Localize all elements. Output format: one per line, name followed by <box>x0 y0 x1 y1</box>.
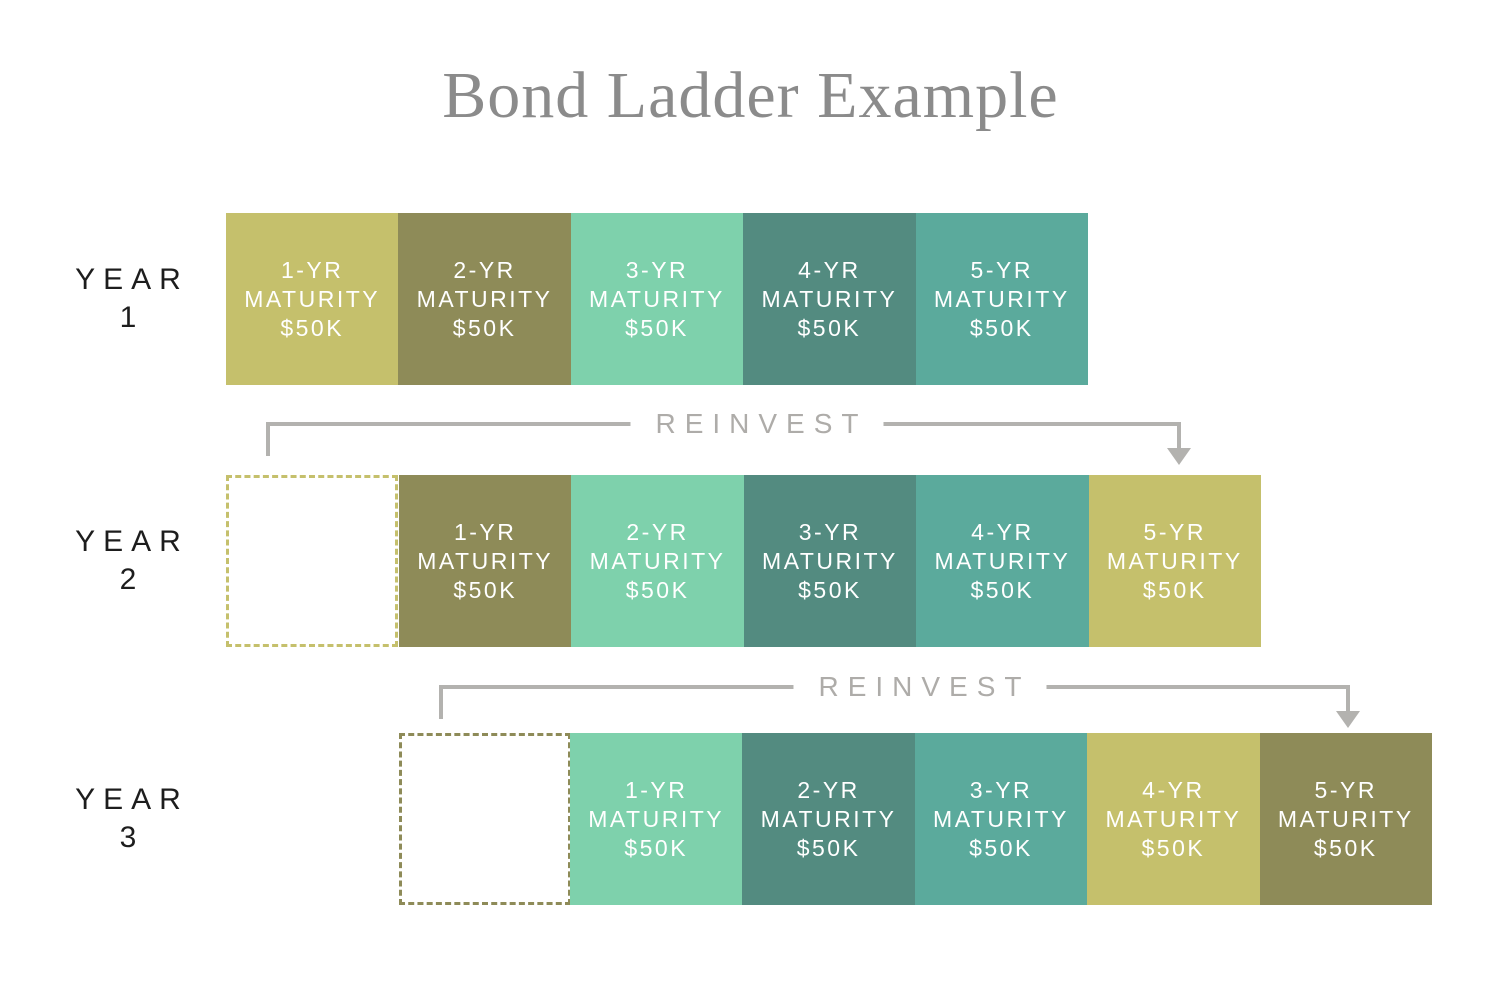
bond-block-y3-1: 1-YR MATURITY $50K <box>570 733 742 905</box>
year-1-number: 1 <box>120 299 137 337</box>
reinvest-label-2: REINVEST <box>793 667 1046 707</box>
bond-amount: $50K <box>798 314 862 343</box>
bond-term: 5-YR <box>1315 776 1377 805</box>
bond-term: 2-YR <box>797 776 859 805</box>
bond-term: 4-YR <box>798 256 860 285</box>
bond-amount: $50K <box>626 576 690 605</box>
bond-term: 2-YR <box>626 518 688 547</box>
bond-block-y2-1: 1-YR MATURITY $50K <box>399 475 571 647</box>
year-3-word: YEAR <box>67 781 189 819</box>
bond-term: 1-YR <box>281 256 343 285</box>
bond-amount: $50K <box>280 314 344 343</box>
bond-term: 3-YR <box>799 518 861 547</box>
bond-term: 5-YR <box>1144 518 1206 547</box>
year-3-number: 3 <box>120 819 137 857</box>
matured-bond-placeholder-y3 <box>399 733 571 905</box>
bond-term: 3-YR <box>970 776 1032 805</box>
reinvest-arrow-1-right-riser <box>1177 422 1181 450</box>
year-1-row: 1-YR MATURITY $50K 2-YR MATURITY $50K 3-… <box>226 213 1088 385</box>
year-3-row: 1-YR MATURITY $50K 2-YR MATURITY $50K 3-… <box>570 733 1432 905</box>
bond-ladder-diagram: Bond Ladder Example YEAR 1 1-YR MATURITY… <box>0 0 1501 997</box>
bond-maturity-label: MATURITY <box>761 285 897 314</box>
year-2-label: YEAR 2 <box>53 475 203 647</box>
bond-maturity-label: MATURITY <box>934 547 1070 576</box>
bond-maturity-label: MATURITY <box>417 547 553 576</box>
bond-maturity-label: MATURITY <box>589 285 725 314</box>
bond-maturity-label: MATURITY <box>761 805 897 834</box>
year-1-word: YEAR <box>67 261 189 299</box>
bond-maturity-label: MATURITY <box>933 805 1069 834</box>
bond-amount: $50K <box>625 314 689 343</box>
bond-maturity-label: MATURITY <box>934 285 1070 314</box>
bond-amount: $50K <box>624 834 688 863</box>
bond-block-y1-3: 3-YR MATURITY $50K <box>571 213 743 385</box>
bond-amount: $50K <box>797 834 861 863</box>
bond-amount: $50K <box>453 314 517 343</box>
bond-term: 5-YR <box>971 256 1033 285</box>
bond-block-y2-2: 2-YR MATURITY $50K <box>571 475 743 647</box>
bond-maturity-label: MATURITY <box>588 805 724 834</box>
reinvest-arrow-1-left-riser <box>266 422 270 456</box>
bond-amount: $50K <box>969 834 1033 863</box>
year-1-label: YEAR 1 <box>53 213 203 385</box>
bond-term: 2-YR <box>453 256 515 285</box>
year-2-row: 1-YR MATURITY $50K 2-YR MATURITY $50K 3-… <box>399 475 1261 647</box>
bond-maturity-label: MATURITY <box>1105 805 1241 834</box>
bond-term: 4-YR <box>1142 776 1204 805</box>
year-2-number: 2 <box>120 561 137 599</box>
bond-block-y1-5: 5-YR MATURITY $50K <box>916 213 1088 385</box>
bond-amount: $50K <box>1142 834 1206 863</box>
bond-amount: $50K <box>798 576 862 605</box>
bond-maturity-label: MATURITY <box>590 547 726 576</box>
reinvest-arrow-1-arrowhead-icon <box>1167 448 1191 465</box>
matured-bond-placeholder-y2 <box>226 475 398 647</box>
bond-amount: $50K <box>971 576 1035 605</box>
bond-term: 4-YR <box>971 518 1033 547</box>
year-3-label: YEAR 3 <box>53 733 203 905</box>
bond-amount: $50K <box>453 576 517 605</box>
bond-term: 1-YR <box>454 518 516 547</box>
bond-block-y1-2: 2-YR MATURITY $50K <box>398 213 570 385</box>
bond-maturity-label: MATURITY <box>417 285 553 314</box>
bond-term: 3-YR <box>626 256 688 285</box>
bond-block-y3-5: 5-YR MATURITY $50K <box>1260 733 1432 905</box>
bond-block-y3-4: 4-YR MATURITY $50K <box>1087 733 1259 905</box>
reinvest-arrow-2-arrowhead-icon <box>1336 711 1360 728</box>
bond-block-y3-3: 3-YR MATURITY $50K <box>915 733 1087 905</box>
bond-block-y2-3: 3-YR MATURITY $50K <box>744 475 916 647</box>
bond-maturity-label: MATURITY <box>1278 805 1414 834</box>
bond-amount: $50K <box>970 314 1034 343</box>
page-title: Bond Ladder Example <box>0 58 1501 134</box>
bond-amount: $50K <box>1314 834 1378 863</box>
reinvest-arrow-2-left-riser <box>439 685 443 719</box>
bond-block-y3-2: 2-YR MATURITY $50K <box>742 733 914 905</box>
bond-maturity-label: MATURITY <box>244 285 380 314</box>
bond-term: 1-YR <box>625 776 687 805</box>
year-2-word: YEAR <box>67 523 189 561</box>
bond-block-y1-1: 1-YR MATURITY $50K <box>226 213 398 385</box>
bond-maturity-label: MATURITY <box>762 547 898 576</box>
reinvest-label-1: REINVEST <box>630 404 883 444</box>
bond-block-y1-4: 4-YR MATURITY $50K <box>743 213 915 385</box>
bond-block-y2-5: 5-YR MATURITY $50K <box>1089 475 1261 647</box>
bond-maturity-label: MATURITY <box>1107 547 1243 576</box>
reinvest-arrow-2-right-riser <box>1346 685 1350 713</box>
bond-amount: $50K <box>1143 576 1207 605</box>
bond-block-y2-4: 4-YR MATURITY $50K <box>916 475 1088 647</box>
